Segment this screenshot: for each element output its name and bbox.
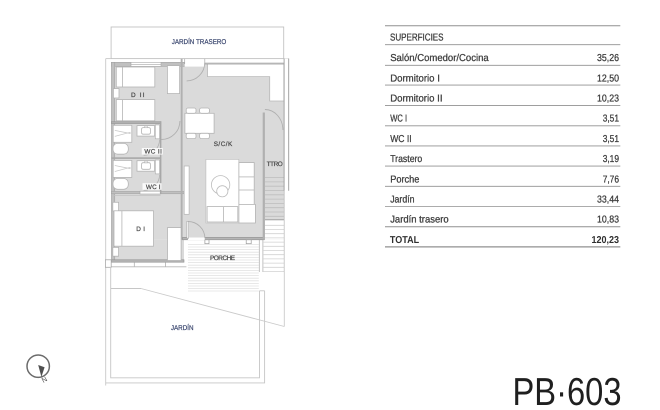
svg-text:PORCHE: PORCHE <box>210 255 235 262</box>
svg-text:Dormitorio I: Dormitorio I <box>390 73 440 84</box>
svg-text:WC II: WC II <box>144 149 162 156</box>
svg-text:WC I: WC I <box>146 184 161 191</box>
svg-text:7,76: 7,76 <box>603 174 620 185</box>
svg-text:Porche: Porche <box>390 174 420 185</box>
svg-text:WC II: WC II <box>390 134 412 145</box>
svg-text:D II: D II <box>131 92 145 99</box>
svg-text:Trastero: Trastero <box>390 154 422 165</box>
svg-text:12,50: 12,50 <box>597 73 619 84</box>
svg-text:10,83: 10,83 <box>597 215 619 226</box>
svg-text:3,51: 3,51 <box>603 134 620 145</box>
svg-text:Salón/Comedor/Cocina: Salón/Comedor/Cocina <box>390 53 489 64</box>
svg-text:Jardín trasero: Jardín trasero <box>390 215 449 226</box>
svg-text:10,23: 10,23 <box>597 94 619 105</box>
svg-text:33,44: 33,44 <box>597 195 619 206</box>
svg-text:JARDÍN: JARDÍN <box>171 323 194 332</box>
svg-text:TTRO: TTRO <box>267 161 283 168</box>
svg-text:120,23: 120,23 <box>592 235 620 246</box>
svg-text:JARDÍN TRASERO: JARDÍN TRASERO <box>172 37 227 46</box>
svg-text:3,19: 3,19 <box>603 154 620 165</box>
svg-text:WC I: WC I <box>390 114 407 125</box>
svg-text:S/C/K: S/C/K <box>214 141 233 148</box>
svg-text:SUPERFICIES: SUPERFICIES <box>390 33 444 44</box>
svg-text:3,51: 3,51 <box>603 114 620 125</box>
svg-text:TOTAL: TOTAL <box>390 235 419 246</box>
svg-text:35,26: 35,26 <box>597 53 619 64</box>
svg-text:Jardín: Jardín <box>390 195 414 206</box>
svg-text:D I: D I <box>136 226 145 233</box>
svg-text:Dormitorio II: Dormitorio II <box>390 94 442 105</box>
svg-text:PB·603: PB·603 <box>513 371 622 410</box>
